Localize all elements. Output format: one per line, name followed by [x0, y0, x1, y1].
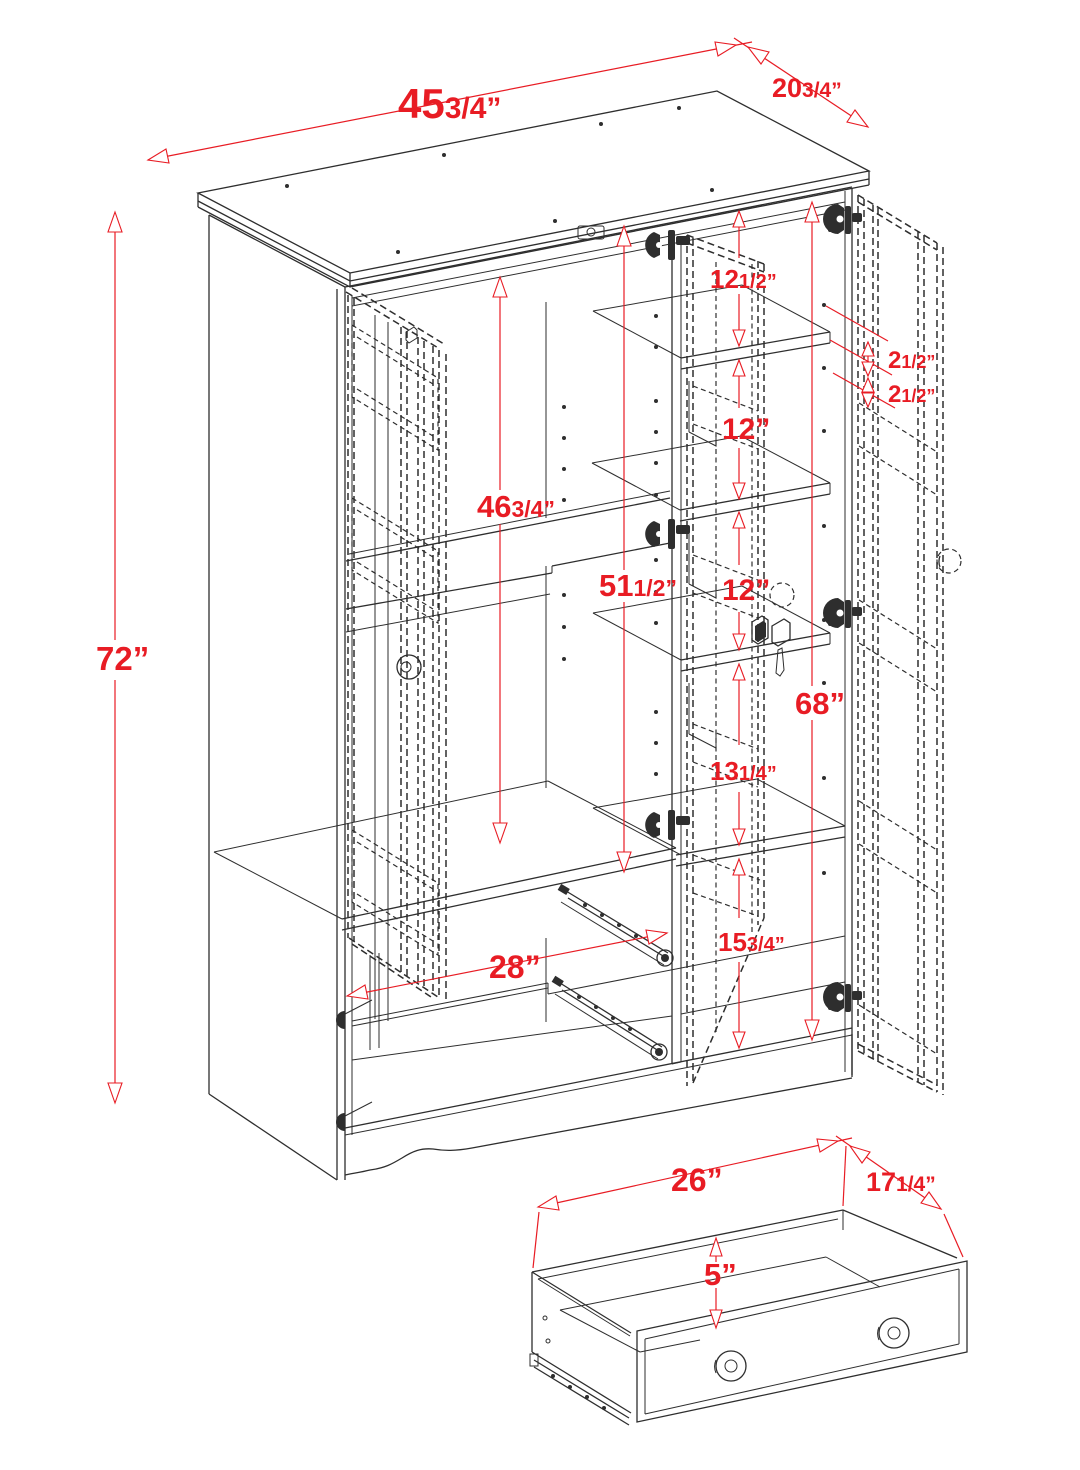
svg-text:21/2”: 21/2”: [888, 347, 935, 374]
svg-text:26”: 26”: [671, 1162, 723, 1198]
svg-text:68”: 68”: [795, 686, 845, 721]
svg-text:28”: 28”: [489, 949, 541, 985]
svg-text:5”: 5”: [704, 1257, 737, 1292]
svg-text:12”: 12”: [722, 574, 770, 607]
svg-text:72”: 72”: [96, 640, 149, 677]
svg-text:12”: 12”: [722, 413, 770, 446]
svg-text:21/2”: 21/2”: [888, 381, 935, 408]
